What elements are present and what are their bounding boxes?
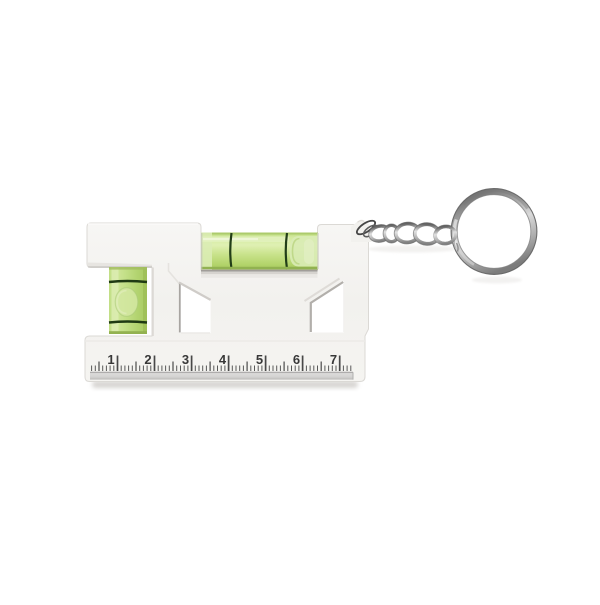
svg-text:5: 5 — [256, 352, 263, 367]
svg-text:2: 2 — [144, 352, 151, 367]
svg-text:1: 1 — [107, 352, 114, 367]
svg-text:7: 7 — [330, 352, 337, 367]
svg-text:4: 4 — [219, 352, 227, 367]
svg-text:6: 6 — [293, 352, 300, 367]
svg-text:3: 3 — [182, 352, 189, 367]
